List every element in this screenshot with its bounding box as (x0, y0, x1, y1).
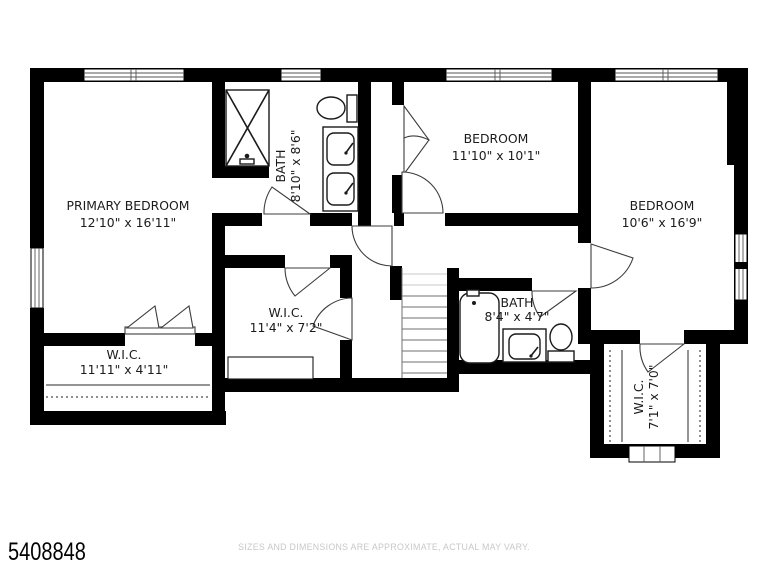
window (629, 446, 675, 462)
room-dims: 8'10" x 8'6" (288, 130, 303, 203)
room-dims: 8'4" x 4'7" (485, 309, 550, 324)
room-dims: 11'10" x 10'1" (452, 148, 541, 163)
page-background (0, 0, 768, 576)
double-vanity-icon (323, 127, 358, 211)
window (281, 69, 321, 81)
room-name: W.I.C. (631, 380, 646, 415)
room-dims: 7'1" x 7'0" (646, 365, 661, 430)
window (84, 69, 184, 81)
room-name: BEDROOM (630, 198, 695, 213)
room-name: W.I.C. (107, 347, 142, 362)
window (446, 69, 552, 81)
room-dims: 11'4" x 7'2" (250, 320, 323, 335)
toilet-icon (548, 324, 574, 362)
shower-icon (226, 90, 269, 166)
disclaimer: SIZES AND DIMENSIONS ARE APPROXIMATE, AC… (238, 542, 530, 552)
room-name: BATH (501, 295, 534, 310)
window (734, 234, 748, 300)
floor-plan-canvas: PRIMARY BEDROOM 12'10" x 16'11" BATH 8'1… (0, 0, 768, 576)
sink-icon (503, 329, 546, 362)
room-dims: 11'11" x 4'11" (80, 362, 169, 377)
bathtub-icon (460, 290, 499, 363)
listing-id: 5408848 (8, 538, 86, 566)
room-name: W.I.C. (269, 305, 304, 320)
window (615, 69, 718, 81)
room-name: PRIMARY BEDROOM (67, 198, 190, 213)
closet-shelf (228, 357, 313, 379)
room-name: BEDROOM (464, 131, 529, 146)
room-name: BATH (273, 150, 288, 183)
floor-plan-page: PRIMARY BEDROOM 12'10" x 16'11" BATH 8'1… (0, 0, 768, 576)
room-dims: 10'6" x 16'9" (622, 215, 703, 230)
room-dims: 12'10" x 16'11" (80, 215, 177, 230)
window (31, 248, 43, 308)
